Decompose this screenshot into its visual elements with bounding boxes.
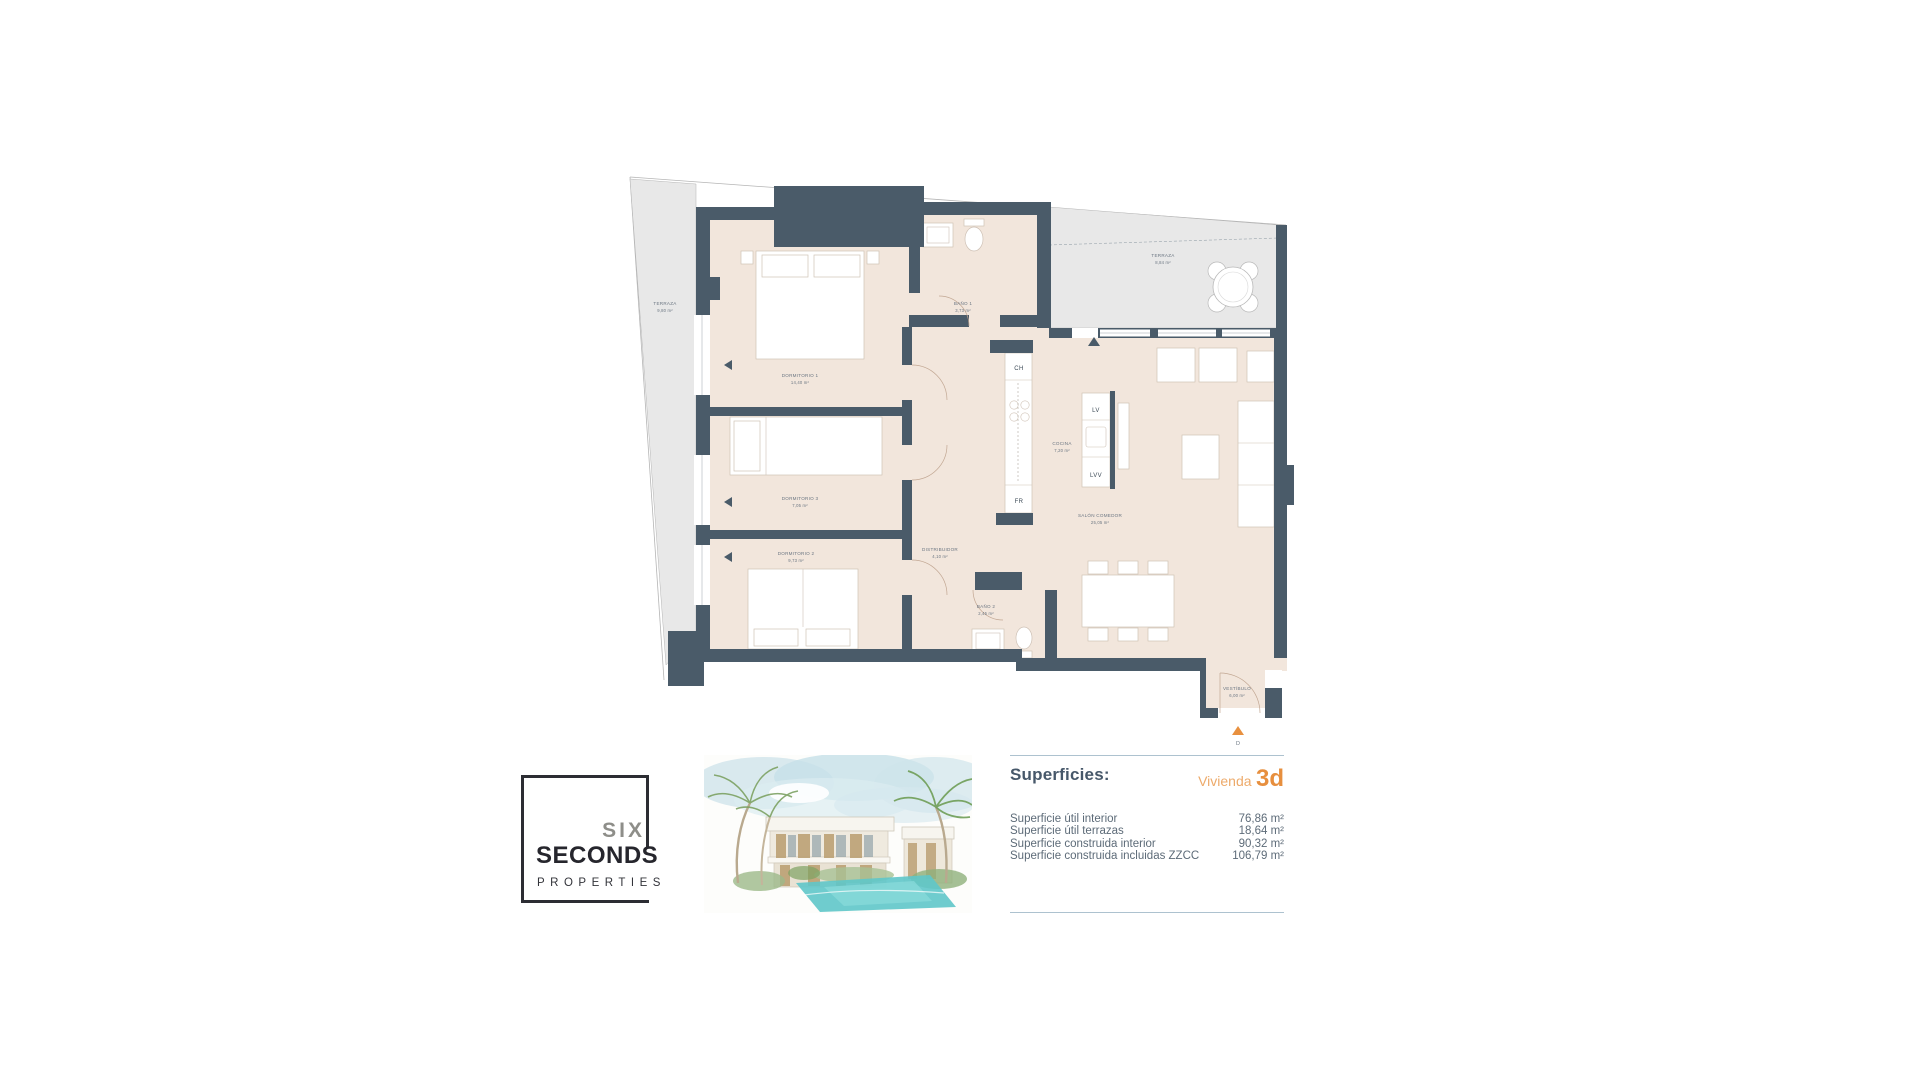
summary-bottom-rule xyxy=(1010,912,1284,913)
label-lvv: LVV xyxy=(1090,473,1102,479)
label-ch: CH xyxy=(1014,366,1023,372)
row-value: 90,32 m² xyxy=(1239,838,1284,850)
area-terraza-left: 9,80 m² xyxy=(657,308,673,313)
floor-plan: D TERRAZA 9,80 m² TERRAZA 8,84 m² DORMIT… xyxy=(620,165,1300,785)
area-dormitorio-3: 7,05 m² xyxy=(792,503,808,508)
logo-frame-bottom xyxy=(521,900,649,903)
row-label: Superficie construida incluidas ZZCC xyxy=(1010,850,1199,862)
area-bano-2: 2,45 m² xyxy=(978,611,994,616)
surface-summary: Superficies: Vivienda 3d Superficie útil… xyxy=(1010,747,1284,917)
label-salon: SALÓN COMEDOR xyxy=(1078,512,1123,518)
unit-identifier: Vivienda 3d xyxy=(1198,765,1284,793)
building-rendering xyxy=(704,755,972,913)
label-dormitorio-3: DORMITORIO 3 xyxy=(782,496,819,501)
summary-row: Superficie construida interior 90,32 m² xyxy=(1010,838,1284,850)
label-terraza-left: TERRAZA xyxy=(653,301,677,306)
label-bano-1: BAÑO 1 xyxy=(954,300,973,306)
summary-row: Superficie útil terrazas 18,64 m² xyxy=(1010,825,1284,837)
label-lv: LV xyxy=(1092,408,1100,414)
summary-row: Superficie construida incluidas ZZCC 106… xyxy=(1010,850,1284,862)
summary-rows: Superficie útil interior 76,86 m² Superf… xyxy=(1010,813,1284,863)
six-seconds-logo: SIX SECONDS PROPERTIES xyxy=(521,775,649,903)
row-label: Superficie construida interior xyxy=(1010,838,1156,850)
label-terraza-top: TERRAZA xyxy=(1151,253,1175,258)
row-value: 18,64 m² xyxy=(1239,825,1284,837)
kitchen-counter xyxy=(1005,353,1032,513)
bed-dormitorio-2 xyxy=(748,569,858,649)
label-distribuidor: DISTRIBUIDOR xyxy=(922,547,958,552)
label-dormitorio-2: DORMITORIO 2 xyxy=(778,551,815,556)
label-bano-2: BAÑO 2 xyxy=(977,603,996,609)
label-fr: FR xyxy=(1015,499,1024,505)
row-label: Superficie útil interior xyxy=(1010,813,1117,825)
logo-frame-right xyxy=(646,775,649,847)
area-terraza-top: 8,84 m² xyxy=(1155,260,1171,265)
bed-dormitorio-3 xyxy=(730,417,882,475)
unit-label: Vivienda xyxy=(1198,773,1251,789)
area-vestibulo: 6,00 m² xyxy=(1229,693,1245,698)
logo-frame-left xyxy=(521,775,524,903)
entrance-marker: D xyxy=(1232,726,1244,747)
label-vestibulo: VESTÍBULO xyxy=(1223,685,1251,691)
logo-word-six: SIX xyxy=(602,819,645,843)
logo-word-properties: PROPERTIES xyxy=(537,877,666,889)
unit-code: 3d xyxy=(1256,765,1284,792)
row-value: 106,79 m² xyxy=(1232,850,1284,862)
entrance-arrow-icon xyxy=(1232,726,1244,735)
terrace-left-floor xyxy=(630,179,696,665)
terrace-table xyxy=(1208,262,1258,312)
area-salon: 25,05 m² xyxy=(1091,520,1110,525)
bed-dormitorio-1 xyxy=(741,251,879,359)
logo-frame-top xyxy=(521,775,649,778)
summary-title: Superficies: xyxy=(1010,765,1110,784)
row-label: Superficie útil terrazas xyxy=(1010,825,1124,837)
dining-set xyxy=(1082,561,1174,641)
area-distribuidor: 4,10 m² xyxy=(932,554,948,559)
area-cocina: 7,20 m² xyxy=(1054,448,1070,453)
label-dormitorio-1: DORMITORIO 1 xyxy=(782,373,819,378)
row-value: 76,86 m² xyxy=(1239,813,1284,825)
label-cocina: COCINA xyxy=(1052,441,1072,446)
logo-word-seconds: SECONDS xyxy=(536,842,658,870)
area-dormitorio-2: 9,73 m² xyxy=(788,558,804,563)
area-dormitorio-1: 14,40 m² xyxy=(791,380,810,385)
summary-row: Superficie útil interior 76,86 m² xyxy=(1010,813,1284,825)
summary-top-rule xyxy=(1010,755,1284,756)
area-bano-1: 3,73 m² xyxy=(955,308,971,313)
